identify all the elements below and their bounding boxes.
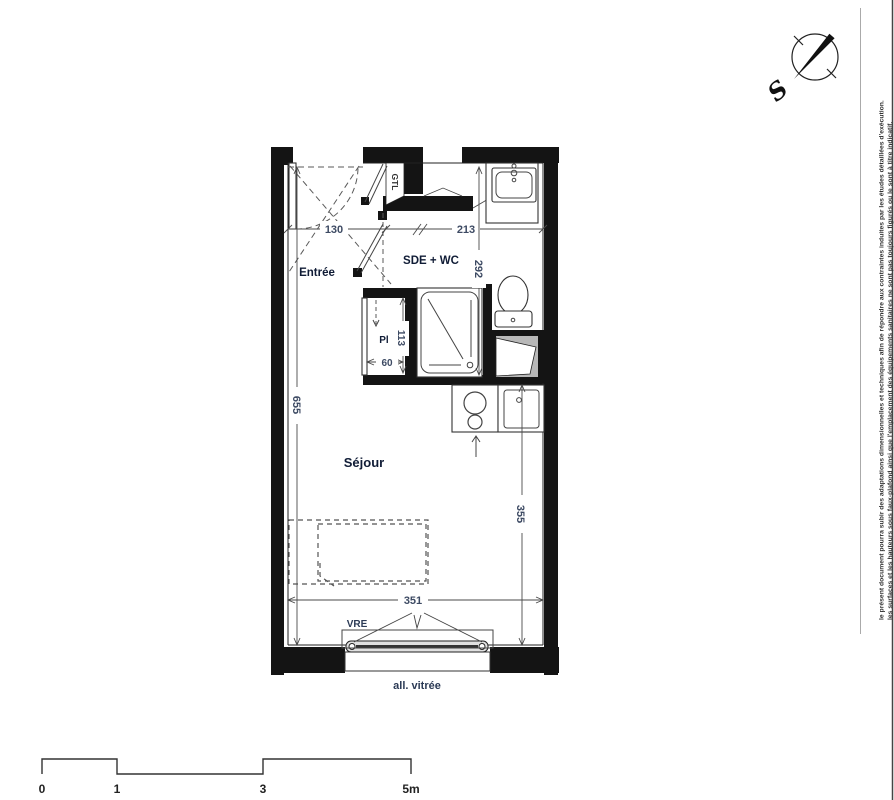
- disclaimer-line2: les surfaces et les hauteurs sous faux-p…: [887, 122, 894, 620]
- wall-niche-side: [404, 161, 423, 194]
- dim-351: 351: [404, 595, 422, 607]
- compass-needle: [794, 34, 835, 79]
- toilet-bowl: [498, 276, 528, 314]
- dim-130: 130: [325, 224, 343, 236]
- dim-60: 60: [381, 358, 393, 369]
- wall-left: [271, 147, 284, 675]
- window-opening-mark: [414, 615, 421, 628]
- closet-front: [362, 298, 367, 375]
- scale-bar-line: [42, 759, 411, 774]
- disclaimer-block: le présent document pourra subir des ada…: [861, 0, 894, 800]
- kitchenette: [452, 385, 544, 457]
- dim-655: 655: [290, 396, 302, 414]
- dim-355: 355: [514, 505, 526, 523]
- compass: S: [762, 34, 838, 107]
- label-entree: Entrée: [299, 267, 335, 279]
- dim-292: 292: [472, 260, 484, 278]
- shower: [417, 288, 482, 377]
- wall-bottom-right: [490, 647, 559, 673]
- dim-213: 213: [457, 224, 475, 236]
- label-vre: VRE: [347, 619, 368, 630]
- floor-plan-drawing: GTL: [0, 0, 894, 800]
- window-sill: [345, 652, 490, 671]
- toilet: [495, 276, 532, 327]
- entrance-door-swing: [296, 167, 358, 229]
- kitchen-sink: [498, 385, 544, 432]
- wall-top-center: [363, 147, 423, 163]
- label-sejour: Séjour: [344, 455, 384, 470]
- floor-plan-page: GTL: [0, 0, 894, 800]
- compass-south-label: S: [762, 74, 794, 107]
- wall-top-left-stub: [271, 147, 293, 165]
- bed-furniture: [289, 520, 428, 586]
- washbasin: [486, 163, 538, 223]
- scale-tick-5m: 5m: [402, 782, 419, 796]
- scale-tick-1: 1: [114, 782, 121, 796]
- toilet-tank: [495, 311, 532, 327]
- scale-tick-0: 0: [39, 782, 46, 796]
- label-all-vitree: all. vitrée: [393, 680, 441, 692]
- scale-bar: 0 1 3 5m: [39, 759, 420, 796]
- gtl-label: GTL: [390, 174, 400, 191]
- technical-shaft: [490, 330, 544, 383]
- wall-bottom-left: [271, 647, 345, 673]
- label-pl: Pl: [379, 335, 389, 346]
- scale-tick-3: 3: [260, 782, 267, 796]
- dim-113: 113: [395, 330, 406, 347]
- disclaimer-line1: le présent document pourra subir des ada…: [879, 100, 886, 620]
- label-sde-wc: SDE + WC: [403, 255, 459, 267]
